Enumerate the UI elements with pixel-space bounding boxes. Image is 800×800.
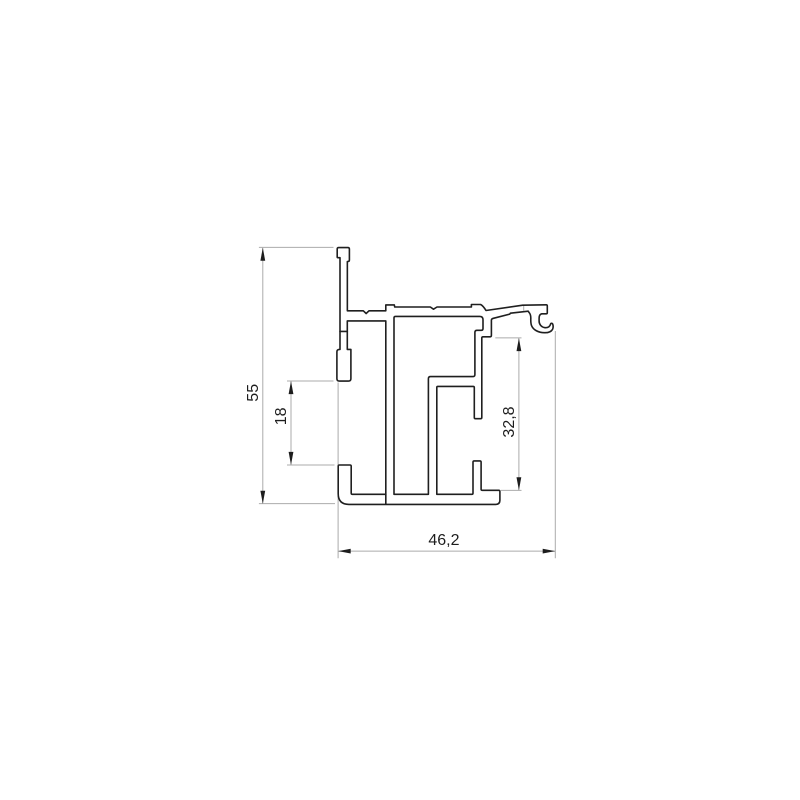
svg-text:55: 55 bbox=[245, 384, 262, 402]
svg-text:18: 18 bbox=[273, 407, 290, 425]
svg-text:46,2: 46,2 bbox=[428, 532, 459, 549]
svg-text:32,8: 32,8 bbox=[501, 406, 518, 437]
